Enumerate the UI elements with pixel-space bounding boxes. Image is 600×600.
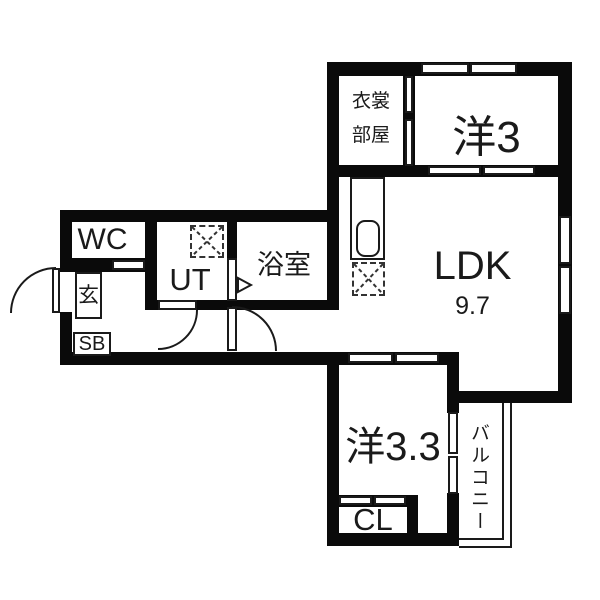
label-shoe-cabinet: SB [73,332,111,356]
label-bedroom-south: 洋3.3 [339,414,447,472]
sliding-door-yo3-ldk-2 [483,166,535,175]
wall-ut-south-stub [145,300,158,310]
wall-ut-bath-divider [227,222,237,258]
balcony-rail-south-outer [459,546,512,548]
sliding-door-ldk-yo33-1 [348,353,393,363]
label-ldk-area: 9.7 [380,292,565,321]
sliding-door-ldk-yo33-2 [395,353,439,363]
wall-east-bottom-upper [447,352,459,413]
sliding-door-wc [112,260,145,270]
window-bedroom-north-1 [421,63,469,74]
label-entrance: 玄 [75,272,102,319]
window-bedroom-south-1 [448,412,458,454]
floor-plan: WC 玄 SB UT 浴室 衣裳 部屋 洋3 LDK 9.7 洋3.3 CL バ… [0,0,600,600]
wall-west-bottom-block [327,352,339,545]
label-dressing-line2: 部屋 [352,125,390,146]
label-wc: WC [60,223,145,257]
label-ldk: LDK [380,244,565,289]
sliding-door-yo3-ldk-1 [428,166,481,175]
washing-machine-space-icon [190,225,224,258]
wall-ldk-southeast [455,391,572,403]
label-bedroom-north: 洋3 [415,101,558,165]
door-arc-entrance [11,268,56,313]
label-closet: CL [339,502,407,538]
kitchen-sink-icon [356,220,380,257]
door-arc-hall-ldk [232,307,276,351]
window-bedroom-north-2 [470,63,517,74]
label-dressing-line1: 衣裳 [352,91,390,112]
door-arc-utility [158,310,197,349]
label-utility: UT [153,262,227,298]
window-bedroom-south-2 [448,456,458,494]
wall-closet-east [407,495,418,540]
balcony-rail-east-outer [510,403,512,548]
door-leaf-hall-ldk [227,307,237,351]
wall-bath-south [197,300,339,310]
sliding-door-dressing-1 [405,76,413,113]
label-bathroom: 浴室 [237,243,331,282]
balcony-rail-east-inner [502,403,504,540]
door-leaf-entrance [52,268,60,313]
label-balcony: バルコニー [466,413,492,543]
wall-east-bottom-lower [447,493,459,545]
wall-north-west-section [60,210,339,222]
sliding-door-dressing-2 [405,119,413,166]
label-dressing-room: 衣裳 部屋 [339,85,403,153]
door-leaf-utility [158,300,197,310]
door-leaf-bathroom [227,258,237,301]
